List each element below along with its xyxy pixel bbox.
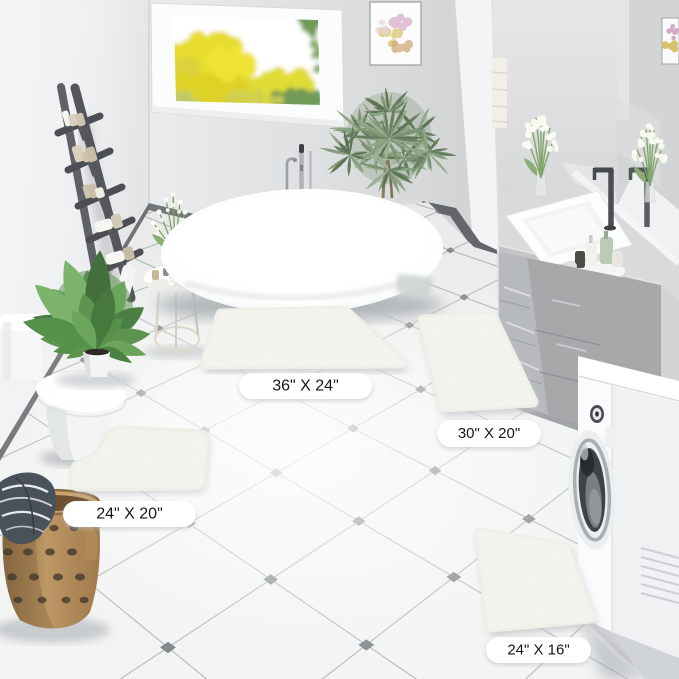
svg-text:24" X 16": 24" X 16" [507, 642, 569, 659]
svg-text:30" X 20": 30" X 20" [458, 425, 520, 442]
svg-text:24" X 20": 24" X 20" [96, 506, 163, 523]
svg-text:36" X 24": 36" X 24" [272, 378, 339, 395]
